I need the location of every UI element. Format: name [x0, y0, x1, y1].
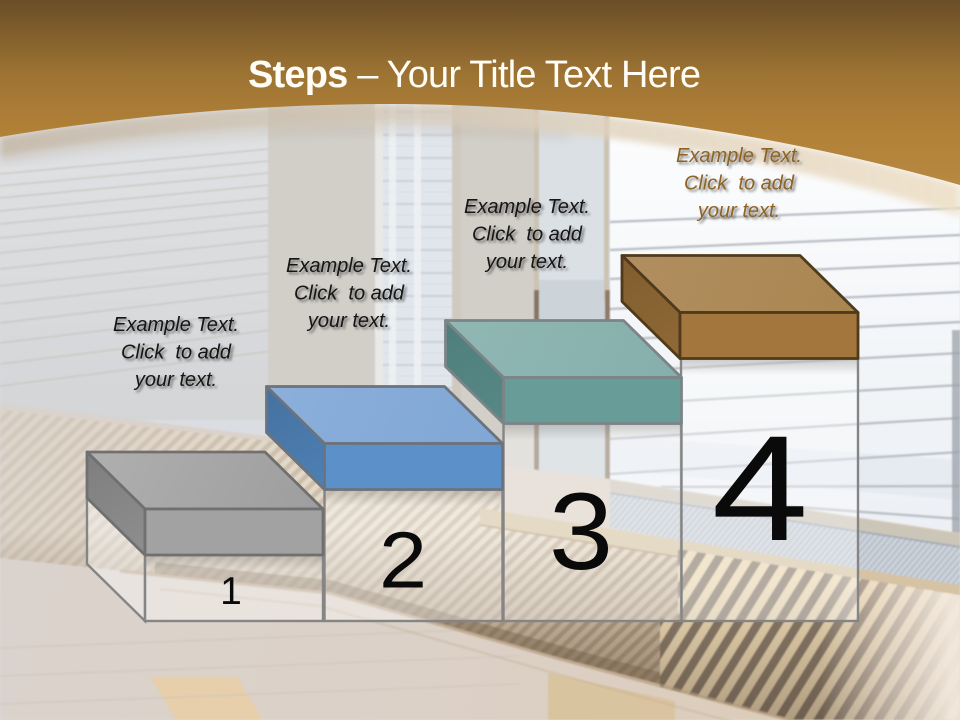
svg-text:Example Text.: Example Text.	[676, 145, 802, 167]
svg-text:Steps – Your Title Text Here: Steps – Your Title Text Here	[248, 54, 700, 96]
svg-text:your text.: your text.	[696, 200, 780, 222]
svg-text:1: 1	[220, 570, 242, 613]
svg-text:Click to add: Click to add	[472, 224, 583, 246]
svg-text:Click to add: Click to add	[294, 283, 405, 305]
svg-text:3: 3	[549, 470, 613, 593]
svg-text:your text.: your text.	[484, 251, 568, 273]
svg-text:your text.: your text.	[306, 310, 390, 332]
svg-text:Click to add: Click to add	[121, 342, 232, 364]
svg-text:Click to add: Click to add	[684, 173, 795, 195]
svg-text:4: 4	[712, 405, 809, 572]
svg-text:2: 2	[379, 515, 427, 604]
svg-text:Example Text.: Example Text.	[464, 196, 590, 218]
svg-text:your text.: your text.	[133, 369, 217, 391]
svg-text:Example Text.: Example Text.	[286, 255, 412, 277]
svg-text:Example Text.: Example Text.	[113, 314, 239, 336]
